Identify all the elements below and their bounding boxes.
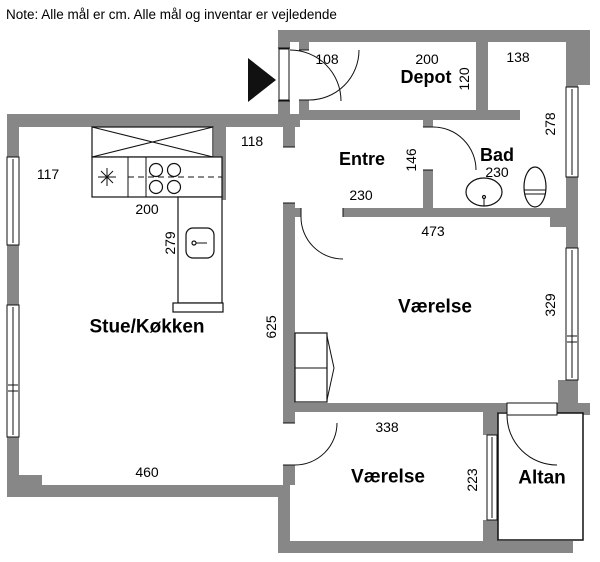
measurement-bad-width: 230 [485, 165, 508, 179]
measurement-vaerelse-bottom-depth: 223 [465, 468, 479, 491]
measurement-kitchen-island: 279 [163, 231, 177, 254]
measurement-vaerelse-top-depth: 329 [543, 293, 557, 316]
kitchen-fixtures [92, 127, 223, 312]
floor-plan-drawing [0, 0, 600, 562]
room-label-vaerelse-top: Værelse [398, 298, 472, 317]
measurement-bad-depth: 278 [543, 112, 557, 135]
room-label-stue: Stue/Køkken [89, 318, 204, 337]
measurement-stue-width: 460 [135, 465, 158, 479]
room-label-depot: Depot [401, 68, 452, 86]
measurement-entry-door: 108 [315, 52, 338, 66]
measurement-vaerelse-top-width: 473 [421, 224, 444, 238]
window-icon [7, 157, 19, 245]
measurement-kitchen-counter: 200 [135, 202, 158, 216]
toilet-icon [524, 167, 546, 207]
kitchen-sink-icon [186, 228, 214, 258]
wardrobe-icon [295, 333, 334, 402]
window-icon [566, 248, 578, 380]
measurement-kitchen-offset: 117 [37, 167, 59, 181]
room-label-bad: Bad [480, 146, 514, 164]
bathroom-door-icon [423, 127, 476, 170]
floor-plan: Note: Alle mål er cm. Alle mål og invent… [0, 0, 600, 562]
room-label-vaerelse-bottom: Værelse [351, 468, 425, 487]
entrance-arrow-icon [248, 58, 276, 102]
measurement-depot-width: 200 [415, 52, 438, 66]
bathroom-sink-icon [466, 178, 502, 206]
measurement-entre-width: 146 [404, 148, 418, 171]
window-icon [487, 435, 497, 520]
room-label-altan: Altan [518, 469, 566, 488]
window-icon [7, 305, 19, 437]
measurement-passage-width: 118 [241, 134, 263, 148]
measurement-stue-depth: 625 [264, 315, 278, 338]
passage-opening [283, 147, 295, 203]
bedroom-bottom-door-icon [283, 423, 337, 465]
window-icon [566, 87, 578, 177]
tall-cabinet-icon [92, 127, 213, 157]
room-label-entre: Entre [339, 150, 385, 168]
plan-note: Note: Alle mål er cm. Alle mål og invent… [6, 7, 337, 22]
measurement-entre-depth: 230 [349, 188, 372, 202]
measurement-depot-depth: 120 [457, 67, 471, 90]
measurement-vaerelse-bottom-width: 338 [375, 420, 398, 434]
bedroom-top-door-icon [301, 208, 343, 259]
measurement-niche-width: 138 [506, 50, 529, 64]
